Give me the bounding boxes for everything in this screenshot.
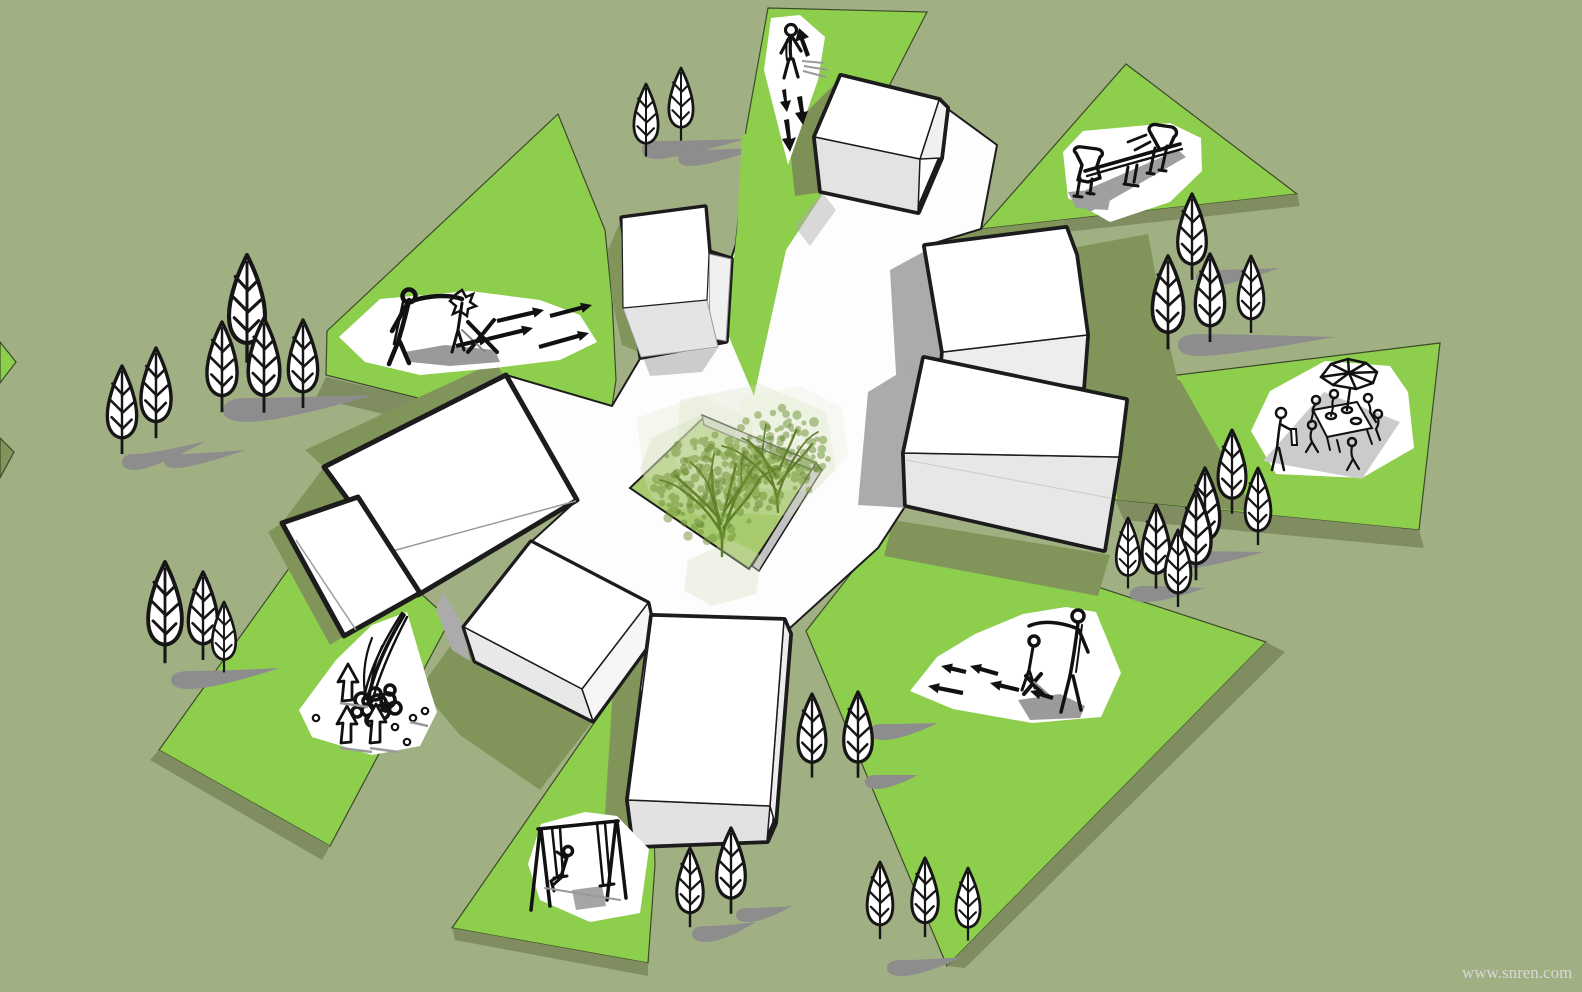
svg-text:www.snren.com: www.snren.com — [1462, 963, 1572, 982]
